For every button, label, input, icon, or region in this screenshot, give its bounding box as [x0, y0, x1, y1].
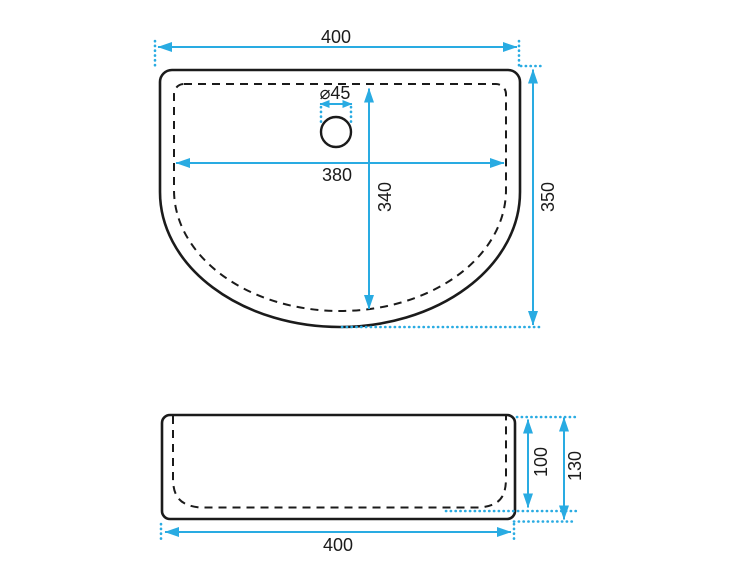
- dim-label-overall-height: 130: [565, 451, 585, 481]
- drain-hole: [321, 117, 351, 147]
- technical-drawing-page: 400 ⌀45 380 340: [0, 0, 750, 585]
- dim-label-front-overall-width: 400: [323, 535, 353, 555]
- top-view-outline: [160, 70, 520, 327]
- top-view: 400 ⌀45 380 340: [155, 27, 558, 327]
- front-view-outline: [162, 415, 515, 519]
- dim-label-drain-diameter: ⌀45: [320, 83, 351, 103]
- dim-label-bowl-depth: 100: [531, 447, 551, 477]
- front-view: 100 130 400: [161, 415, 585, 555]
- dim-label-inner-depth: 340: [375, 182, 395, 212]
- washbasin-dimension-drawing: 400 ⌀45 380 340: [0, 0, 750, 585]
- dim-label-inner-width: 380: [322, 165, 352, 185]
- dim-inner-width: 380: [176, 163, 504, 185]
- front-view-bowl-dashed-outline: [173, 416, 506, 508]
- dim-front-overall-width: 400: [161, 524, 514, 555]
- dim-label-top-overall-width: 400: [321, 27, 351, 47]
- dim-label-overall-depth: 350: [538, 182, 558, 212]
- dim-bowl-depth: 100: [446, 417, 576, 511]
- dim-top-overall-width: 400: [155, 27, 519, 66]
- dim-inner-depth: 340: [369, 89, 395, 310]
